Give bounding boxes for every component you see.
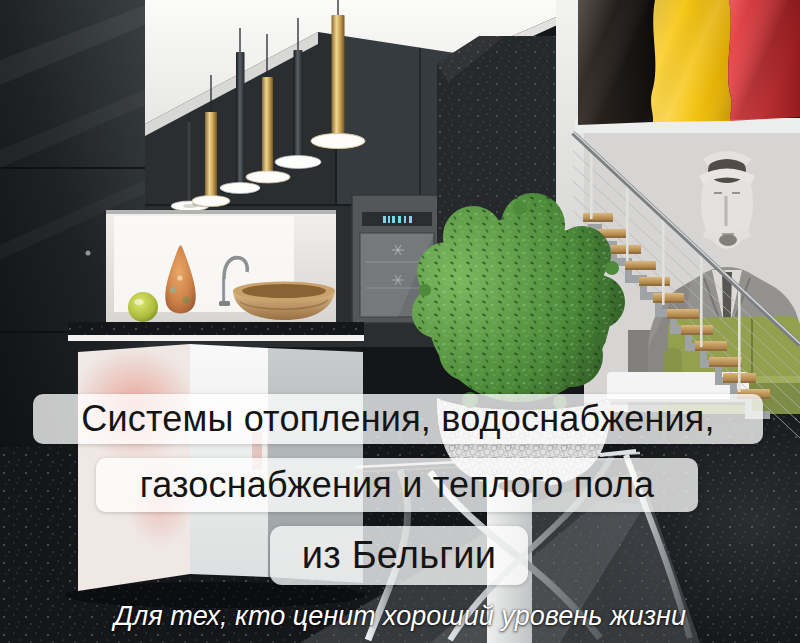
poster: Системы отопления, водоснабжения, газосн… — [0, 0, 800, 643]
headline-box-3: из Бельгии — [270, 526, 528, 585]
headline-line-3: из Бельгии — [302, 534, 496, 577]
headline-box-1: Системы отопления, водоснабжения, — [33, 394, 763, 444]
headline-line-2: газоснабжения и теплого пола — [140, 464, 655, 506]
text-overlay: Системы отопления, водоснабжения, газосн… — [0, 0, 800, 643]
tagline: Для тех, кто ценит хороший уровень жизни — [0, 601, 800, 632]
headline-box-2: газоснабжения и теплого пола — [96, 458, 698, 512]
headline-line-1: Системы отопления, водоснабжения, — [81, 398, 714, 440]
